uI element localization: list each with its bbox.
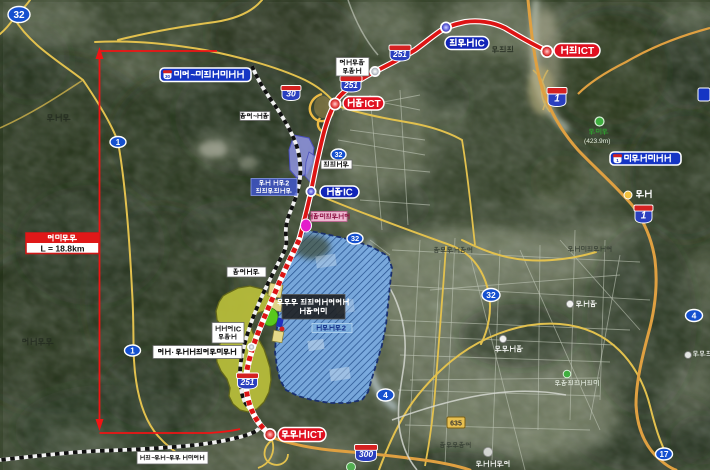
svg-text:30: 30 [286, 89, 296, 99]
svg-text:32: 32 [486, 290, 496, 300]
svg-text:~: ~ [253, 112, 257, 121]
svg-text:251: 251 [343, 81, 358, 90]
svg-text:2: 2 [285, 180, 289, 188]
svg-text:L = 18.8km: L = 18.8km [40, 244, 84, 254]
svg-text:32: 32 [335, 152, 343, 159]
svg-text:251: 251 [240, 378, 255, 387]
svg-text:1: 1 [116, 138, 121, 147]
svg-text:635: 635 [450, 421, 462, 428]
svg-text:32: 32 [351, 234, 359, 243]
svg-text:1: 1 [641, 211, 647, 222]
svg-text:300: 300 [359, 449, 373, 459]
svg-text:1: 1 [130, 346, 135, 355]
svg-text:(423.9m): (423.9m) [584, 138, 610, 145]
svg-text:4: 4 [692, 311, 697, 321]
svg-text:ICT: ICT [307, 430, 323, 441]
svg-text:1: 1 [616, 158, 619, 163]
svg-text:32: 32 [13, 10, 25, 21]
svg-text:IC: IC [343, 187, 353, 198]
svg-text:~: ~ [166, 455, 170, 462]
svg-text:·: · [172, 348, 175, 357]
svg-text:1: 1 [554, 94, 560, 105]
svg-text:ICT: ICT [364, 99, 381, 110]
svg-text:17: 17 [660, 450, 669, 459]
svg-text:IC: IC [234, 324, 242, 333]
svg-text:ICT: ICT [578, 46, 595, 57]
svg-text:IC: IC [475, 39, 485, 50]
svg-text:251: 251 [392, 50, 407, 59]
svg-text:~: ~ [190, 70, 196, 81]
svg-text:4: 4 [383, 390, 388, 400]
svg-text:30: 30 [165, 74, 171, 79]
svg-text:2: 2 [342, 324, 346, 333]
svg-text:~: ~ [151, 455, 155, 462]
